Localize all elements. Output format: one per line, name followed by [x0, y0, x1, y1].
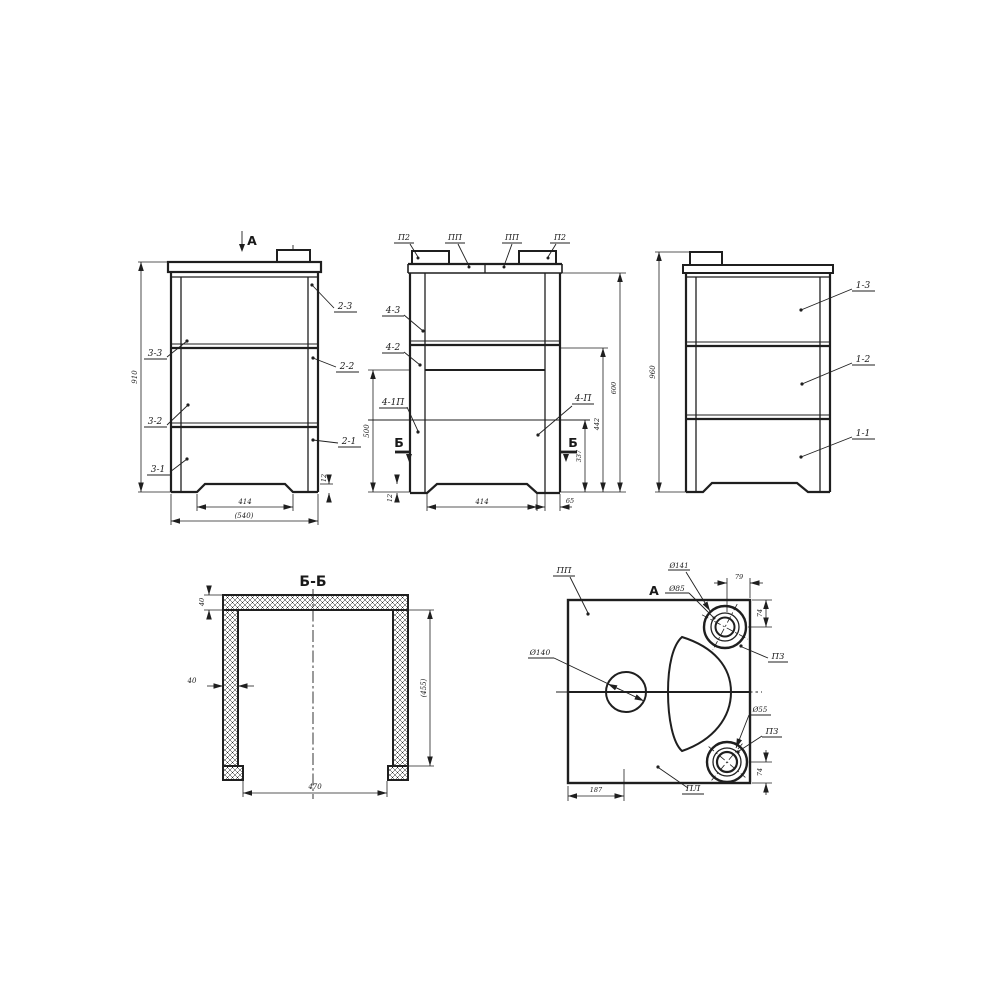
section-letter-left: Б	[394, 435, 404, 450]
part-label-2-2: 2-2	[339, 362, 355, 372]
dim-front-base-width: 414	[237, 498, 251, 506]
dim-inner-width: 470	[307, 783, 322, 791]
dim-middle-base-width: 414	[474, 498, 488, 506]
front-view-outline	[168, 245, 321, 492]
dim-top-wall: 40	[198, 598, 206, 607]
section-bb-walls	[223, 589, 408, 799]
part-label-1-2: 1-2	[856, 355, 871, 365]
dim-front-height: 910	[131, 370, 139, 384]
side-view-dimensions: 960	[649, 252, 690, 492]
view-a-label: A	[649, 583, 659, 598]
dia-ring-top-label: Ø85	[668, 584, 685, 593]
dim-opening-height: 500	[363, 424, 371, 438]
part-label-2-1: 2-1	[341, 437, 357, 447]
part-label-3-1: 3-1	[151, 465, 166, 475]
front-view: A 3-3 3-2 3-1 2-3 2-2 2-1 910	[131, 231, 361, 525]
plate-label-p2-left: П2	[397, 233, 410, 242]
dia-ring-outer-label: Ø141	[668, 562, 688, 570]
ring-label-pz-bottom: ПЗ	[765, 727, 779, 737]
dim-bottom-left: 187	[590, 786, 603, 794]
plate-label-p2-right: П2	[553, 233, 566, 242]
technical-drawing: A 3-3 3-2 3-1 2-3 2-2 2-1 910	[0, 0, 1000, 1000]
dim-front-overall-width: (540)	[235, 512, 254, 520]
section-title: Б-Б	[299, 574, 326, 590]
middle-view-dimensions: 500 12 414 65 337 442 600	[363, 273, 626, 511]
part-label-2-3: 2-3	[337, 302, 353, 312]
part-label-3-3: 3-3	[148, 349, 163, 359]
dia-ring-bottom-label: Ø55	[752, 706, 768, 714]
plate-label-pp-left: ПП	[447, 233, 463, 242]
top-view-dimensions: 79 74 74 187	[568, 573, 772, 801]
dim-h-outer: 600	[610, 382, 618, 394]
ring-label-pz-top: ПЗ	[771, 652, 785, 662]
dim-h-inner: 337	[575, 449, 583, 462]
section-bb-view: Б-Б 40 40 470 (455)	[187, 574, 434, 799]
top-view: A Ø85 Ø141 Ø140 Ø55 ПП ПЛ ПЗ ПЗ	[528, 562, 788, 801]
dim-front-leg-height: 12	[320, 474, 328, 482]
middle-view: П2 ПП ПП П2 4-3 4-2 4-1П 4-П	[363, 233, 626, 511]
part-label-4-p: 4-П	[574, 394, 592, 404]
part-label-4-2: 4-2	[385, 343, 401, 353]
top-view-outline	[556, 600, 762, 783]
dim-right-bottom: 74	[756, 768, 764, 776]
section-letter-right: Б	[568, 435, 578, 450]
section-cut-marks: Б Б	[394, 435, 578, 462]
part-label-4-3: 4-3	[385, 306, 401, 316]
side-view: 1-3 1-2 1-1 960	[649, 252, 875, 492]
dim-h-mid: 442	[593, 418, 601, 431]
dim-side-height: 960	[649, 365, 657, 379]
front-view-part-labels: 3-3 3-2 3-1 2-3 2-2 2-1	[144, 283, 361, 475]
part-label-1-1: 1-1	[856, 429, 871, 439]
dia-center-label: Ø140	[529, 648, 551, 657]
middle-view-outline	[368, 251, 590, 493]
dim-middle-leg-height: 12	[386, 494, 394, 502]
panel-label-pl: ПЛ	[685, 784, 701, 794]
front-view-dimensions: 910 414 (540) 12	[131, 262, 333, 525]
panel-label-pp: ПП	[556, 566, 572, 576]
side-view-part-labels: 1-3 1-2 1-1	[799, 281, 875, 459]
plate-label-pp-right: ПП	[504, 233, 520, 242]
part-label-3-2: 3-2	[148, 417, 163, 427]
crescent-cutout	[668, 637, 731, 751]
part-label-1-3: 1-3	[856, 281, 871, 291]
side-view-outline	[683, 252, 833, 492]
view-a-marker-label: A	[247, 233, 257, 248]
dim-side-offset: 65	[566, 497, 574, 505]
dim-side-wall: 40	[187, 677, 197, 685]
dim-inner-height: (455)	[420, 678, 428, 697]
middle-view-part-labels: 4-3 4-2 4-1П 4-П	[379, 306, 594, 437]
view-direction-marker-a: A	[239, 231, 257, 252]
drawing-sheet: A 3-3 3-2 3-1 2-3 2-2 2-1 910	[0, 0, 1000, 1000]
dim-right-top: 74	[756, 609, 764, 617]
dim-top-offset: 79	[735, 573, 743, 581]
part-label-4-1p: 4-1П	[381, 398, 404, 408]
